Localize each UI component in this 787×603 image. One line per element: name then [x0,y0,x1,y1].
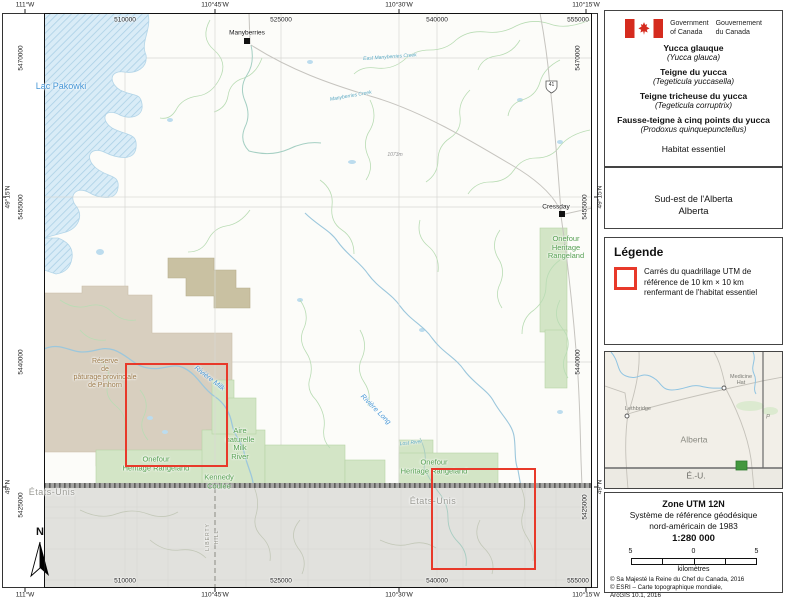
coord-bot-deg-1: 111°W [16,592,35,599]
coord-bot-utm-1: 510000 [114,578,136,585]
species-common-3: Teigne tricheuse du yucca [605,91,782,101]
coord-left-utm-4: 5425000 [18,492,25,517]
credits-text: © Sa Majesté la Reine du Chef du Canada,… [610,576,782,600]
region-line2: Alberta [605,206,782,217]
coord-bot-utm-4: 555000 [567,578,589,585]
coord-bot-utm-3: 540000 [426,578,448,585]
coord-top-utm-3: 540000 [426,17,448,24]
habitat-square-1 [125,363,228,467]
legend-item-text: Carrés du quadrillage UTM de référence d… [644,267,757,299]
species-common-2: Teigne du yucca [605,67,782,77]
utm-zone-text: Zone UTM 12N [605,499,782,509]
species-scientific-2: (Tegeticula yuccasella) [605,77,782,86]
coord-right-deg-2: 49°N [597,480,604,495]
coord-left-utm-2: 5455000 [18,194,25,219]
coord-left-deg-1: 49°15'N [5,186,12,209]
scale-num-mid: 0 [692,548,696,555]
gov-wordmark-fr: Gouvernement du Canada [716,20,762,38]
coord-top-deg-2: 110°45'W [201,2,229,9]
legend-item: Carrés du quadrillage UTM de référence d… [614,267,782,299]
coord-bot-deg-3: 110°30'W [385,592,413,599]
datum-text: Système de référence géodésique nord-amé… [605,510,782,531]
gov-wordmark-en: Government of Canada [670,20,709,38]
species-common-4: Fausse-teigne à cinq points du yucca [605,115,782,125]
coord-bot-utm-2: 525000 [270,578,292,585]
habitat-subtitle: Habitat essentiel [605,144,782,154]
legend-panel: Légende Carrés du quadrillage UTM de réf… [604,237,783,345]
coord-bot-deg-2: 110°45'W [201,592,229,599]
coord-top-utm-2: 525000 [270,17,292,24]
species-scientific-4: (Prodoxus quinquepunctellus) [605,125,782,134]
coord-top-utm-1: 510000 [114,17,136,24]
inset-map-panel [604,351,783,489]
coord-right-utm-1: 5470000 [575,45,582,70]
scale-bar-numbers: 5 0 5 [631,548,757,556]
species-scientific-3: (Tegeticula corruptrix) [605,101,782,110]
coord-bot-deg-4: 110°15'W [572,592,600,599]
title-panel: Government of Canada Gouvernement du Can… [604,10,783,167]
scale-ratio: 1:280 000 [605,533,782,544]
manyberries-marker [244,38,250,44]
region-line1: Sud-est de l'Alberta [605,194,782,204]
north-arrow-n-label: N [36,526,44,538]
coord-top-deg-3: 110°30'W [385,2,413,9]
species-entry: Yucca glauque (Yucca glauca) [605,43,782,62]
scale-unit: kilomètres [605,566,782,573]
coord-left-deg-2: 49°N [5,480,12,495]
scale-panel: Zone UTM 12N Système de référence géodés… [604,492,783,593]
species-entry: Teigne du yucca (Tegeticula yuccasella) [605,67,782,86]
coord-top-utm-4: 555000 [567,17,589,24]
coord-right-utm-2: 5455000 [582,194,589,219]
species-scientific-1: (Yucca glauca) [605,53,782,62]
cressday-marker [559,211,565,217]
coord-right-utm-3: 5440000 [575,349,582,374]
map-document: 111°W 110°45'W 110°30'W 110°15'W 510000 … [0,0,787,603]
species-entry: Fausse-teigne à cinq points du yucca (Pr… [605,115,782,134]
canada-flag-icon [625,19,663,38]
coord-top-deg-1: 111°W [16,2,35,9]
coord-left-utm-1: 5470000 [18,45,25,70]
scale-bar [631,558,757,565]
coord-top-deg-4: 110°15'W [572,2,600,9]
coord-right-deg-1: 49°15'N [597,186,604,209]
habitat-square-symbol [614,267,637,290]
habitat-square-2 [431,468,536,570]
species-common-1: Yucca glauque [605,43,782,53]
scale-num-left: 5 [629,548,633,555]
coord-left-utm-3: 5440000 [18,349,25,374]
scale-num-right: 5 [755,548,759,555]
coord-right-utm-4: 5425000 [582,494,589,519]
legend-title: Légende [614,245,782,259]
species-entry: Teigne tricheuse du yucca (Tegeticula co… [605,91,782,110]
government-header: Government of Canada Gouvernement du Can… [605,19,782,38]
region-panel: Sud-est de l'Alberta Alberta [604,167,783,229]
